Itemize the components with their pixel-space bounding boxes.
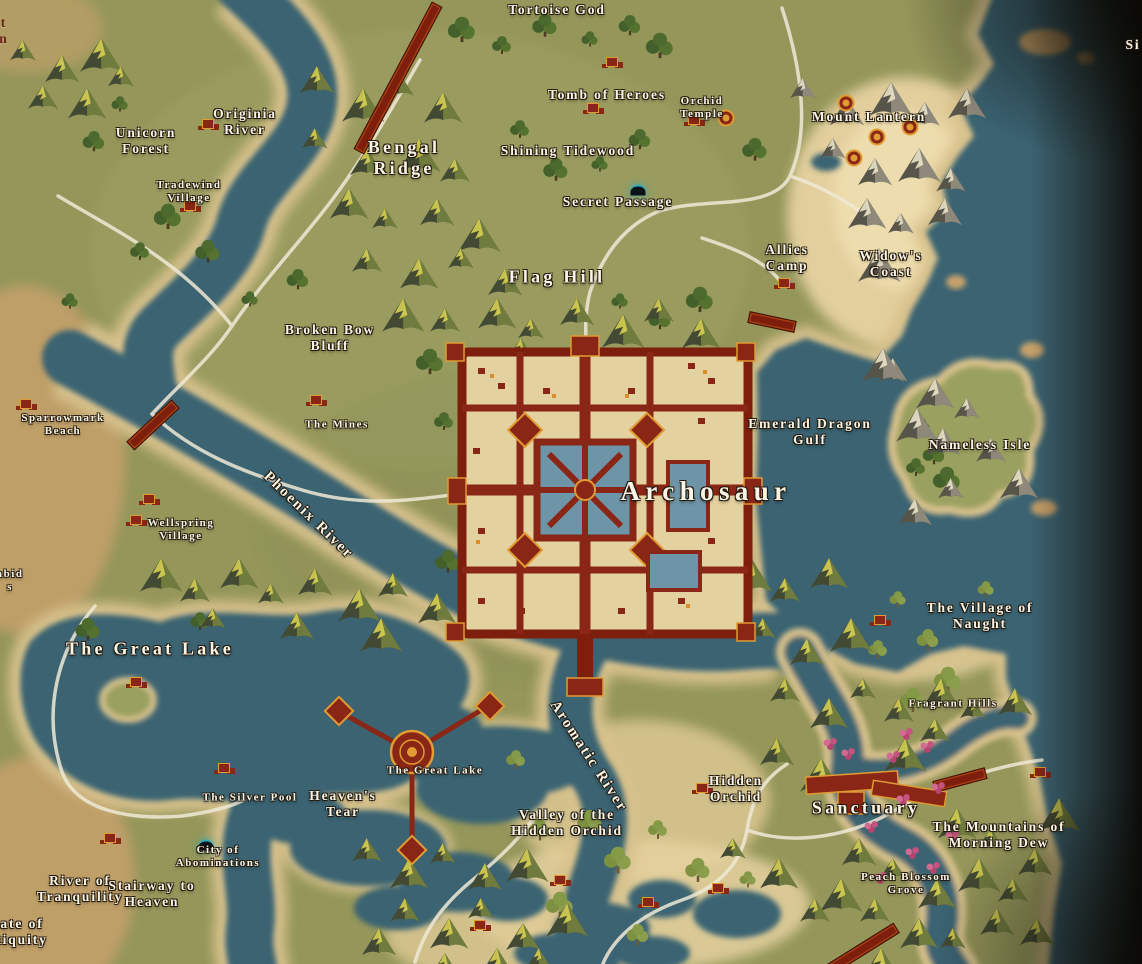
map-label-sparrowmark-beach: Sparrowmark Beach — [21, 412, 104, 438]
blossom-tree-icon — [863, 821, 879, 833]
map-label-bengal-ridge: Bengal Ridge — [368, 137, 440, 179]
map-label-originia-river: Originia River — [213, 106, 277, 138]
map-label-the-mines: The Mines — [305, 419, 369, 432]
map-label-ate-of-tiquity: ate of tiquity — [0, 916, 48, 948]
map-label-tradewind-village: Tradewind Village — [157, 179, 222, 205]
blossom-tree-icon — [919, 741, 935, 753]
lantern-tower-icon — [846, 150, 863, 167]
map-label-sanctuary: Sanctuary — [812, 797, 920, 818]
allies-camp-icon — [778, 278, 790, 288]
valley-camp-icon — [474, 920, 486, 930]
map-label-the-mountains-of-morning-dew: The Mountains of Morning Dew — [932, 819, 1065, 851]
map-label-hidden-orchid: Hidden Orchid — [709, 773, 763, 805]
blossom-tree-icon — [840, 748, 856, 760]
blossom-tree-icon — [904, 847, 920, 859]
lantern-tower-icon — [869, 129, 886, 146]
hidden-orchid-camp-icon — [696, 783, 708, 793]
map-label-mount-lantern: Mount Lantern — [812, 109, 926, 125]
world-map: Tortoise GodOriginia RiverUnicorn Forest… — [0, 0, 1142, 964]
naught-dock-icon — [874, 615, 886, 625]
silver-pool-camp-icon — [218, 763, 230, 773]
map-label-widow-s-coast: Widow's Coast — [859, 248, 922, 280]
map-label-fragrant-hills: Fragrant Hills — [908, 698, 997, 711]
map-label-the-great-lake: The Great Lake — [66, 638, 234, 659]
map-label-tomb-of-heroes: Tomb of Heroes — [548, 87, 666, 103]
map-label-valley-of-the-hidden-orchid: Valley of the Hidden Orchid — [511, 807, 623, 839]
map-label-the-silver-pool: The Silver Pool — [202, 792, 297, 805]
map-label-unicorn-forest: Unicorn Forest — [116, 125, 176, 157]
map-label-heaven-s-tear: Heaven's Tear — [309, 788, 377, 820]
blossom-tree-icon — [885, 751, 901, 763]
mines-camp-icon — [310, 395, 322, 405]
map-label-the-great-lake: The Great Lake — [387, 765, 484, 778]
map-label-abid-s: abid s — [0, 568, 23, 594]
map-label-allies-camp: Allies Camp — [765, 242, 809, 274]
map-label-stairway-to-heaven: Stairway to Heaven — [108, 878, 195, 910]
blossom-tree-icon — [822, 738, 838, 750]
map-label-broken-bow-bluff: Broken Bow Bluff — [285, 322, 375, 354]
wellspring-village-icon — [143, 494, 155, 504]
lake-isle-hut-icon — [130, 677, 142, 687]
map-label-peach-blossom-grove: Peach Blossom Grove — [861, 871, 951, 897]
map-label-shining-tidewood: Shining Tidewood — [501, 143, 635, 159]
map-label-orchid-temple: Orchid Temple — [680, 95, 724, 121]
map-label-secret-passage: Secret Passage — [563, 194, 674, 210]
map-label-flag-hill: Flag Hill — [509, 266, 606, 287]
stairway-camp-icon — [104, 833, 116, 843]
beach-camp-icon — [642, 897, 654, 907]
blossom-tree-icon — [898, 728, 914, 740]
map-label-wellspring-village: Wellspring Village — [148, 517, 215, 543]
map-label-t-n: t n — [0, 15, 9, 47]
map-label-nameless-isle: Nameless Isle — [929, 437, 1031, 453]
blossom-tree-icon — [930, 782, 946, 794]
beach-camp-icon — [554, 875, 566, 885]
tomb-of-heroes-icon — [606, 57, 618, 67]
wellspring-village-icon — [130, 515, 142, 525]
beach-camp-icon — [712, 883, 724, 893]
map-label-tortoise-god: Tortoise God — [508, 2, 606, 18]
sparrowmark-camp-icon — [20, 399, 32, 409]
tomb-shrine-icon — [587, 103, 599, 113]
map-label-archosaur: Archosaur — [620, 476, 791, 508]
map-label-the-village-of-naught: The Village of Naught — [927, 600, 1034, 632]
map-label-si: Si — [1125, 37, 1140, 53]
morning-dew-camp-icon — [1034, 767, 1046, 777]
map-label-emerald-dragon-gulf: Emerald Dragon Gulf — [748, 416, 872, 448]
map-label-city-of-abominations: City of Abominations — [176, 844, 261, 870]
